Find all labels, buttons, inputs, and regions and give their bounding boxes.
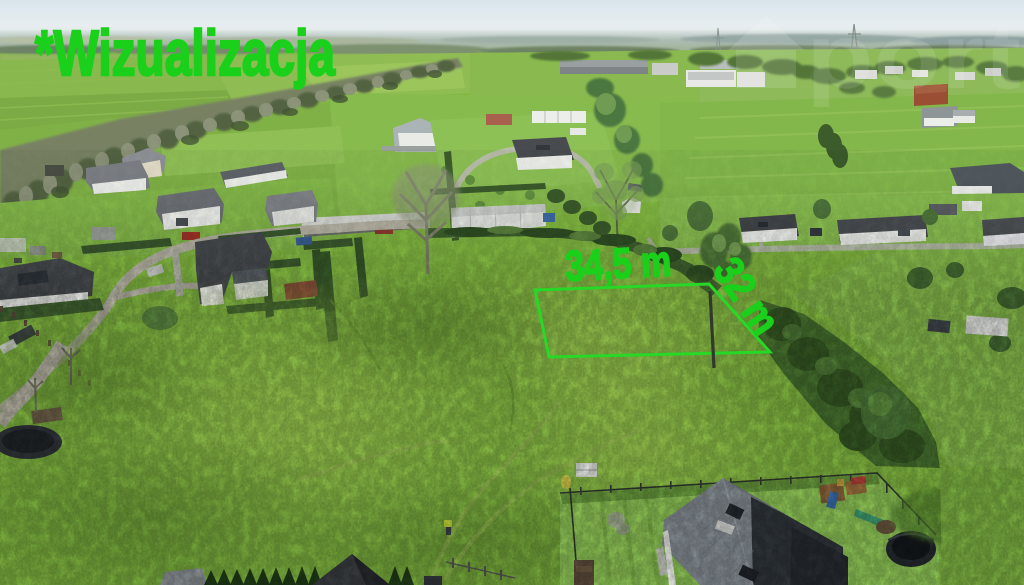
svg-text:34,5 m: 34,5 m [564,238,672,291]
svg-text:*Wizualizacja: *Wizualizacja [35,17,335,89]
svg-text:port: port [806,6,1021,108]
